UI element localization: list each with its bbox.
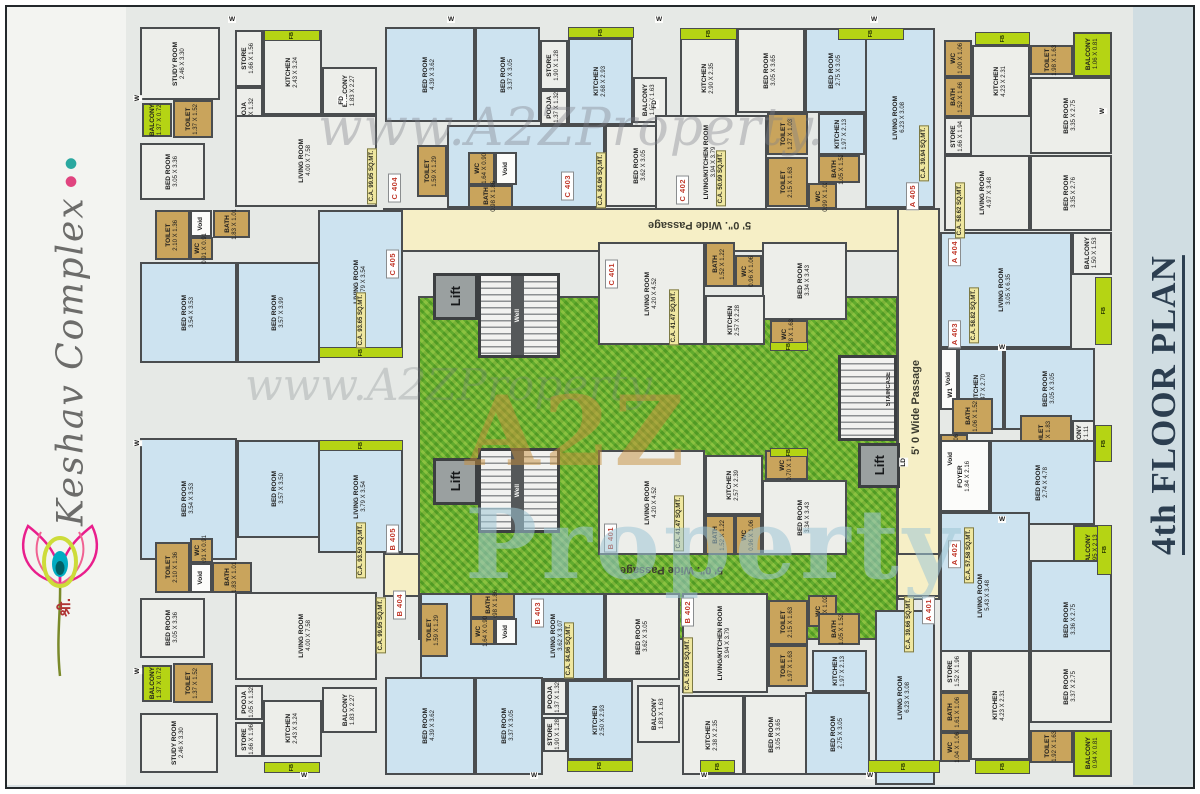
fb-strip: FB xyxy=(319,347,403,358)
marker-w: W xyxy=(870,16,878,23)
lift-bottom: Lift xyxy=(433,458,478,505)
pooja: POOJA1.05 X 1.32 xyxy=(235,685,263,720)
marker-w: W xyxy=(655,16,663,23)
bed-room: BED ROOM3.37 X 3.05 xyxy=(475,27,540,122)
unit-tag-c-402: C 402 xyxy=(676,176,689,205)
stair-well-top: Well xyxy=(511,276,524,355)
bed-room: BED ROOM3.37 X 3.05 xyxy=(475,677,543,775)
marker-w: W xyxy=(133,668,142,674)
fb-strip: FB xyxy=(975,760,1030,774)
area-tag-b-405: C.A. 93.50 SQ.MT. xyxy=(356,522,366,578)
kitchen: KITCHEN2.90 X 2.35 xyxy=(680,28,737,128)
wc: WC1.04 X 1.06 xyxy=(940,732,970,762)
balcony: BALCONY1.83 X 1.63 xyxy=(637,685,680,743)
fb-strip: FB xyxy=(1095,425,1112,462)
area-tag-b-403: C.A. 84.96 SQ.MT. xyxy=(564,622,574,678)
area-tag-a-403: C.A. 58.82 SQ.MT. xyxy=(969,287,979,343)
wc: WC0.99 X 1.02 xyxy=(808,183,837,209)
area-tag-b-404: C.A. 99.95 SQ.MT. xyxy=(376,597,386,653)
balcony: BALCONY1.37 X 0.72 xyxy=(142,665,172,702)
area-tag-a-404: C.A. 58.62 SQ.MT. xyxy=(955,182,965,238)
toilet: TOILET1.98 X 1.63 xyxy=(1030,45,1073,75)
store: STORE1.52 X 1.96 xyxy=(940,650,970,692)
passage-top-label: 5' 0". Wide Passage xyxy=(648,219,751,231)
unit-tag-b-402: B 402 xyxy=(681,598,694,627)
area-tag-a-405: C.A. 39.94 SQ.MT. xyxy=(919,125,929,181)
toilet: TOILET2.10 X 1.36 xyxy=(155,210,190,260)
area-tag-c-402: C.A. 50.99 SQ.MT. xyxy=(716,150,726,206)
kitchen: KITCHEN4.23 X 2.31 xyxy=(972,45,1030,117)
area-tag-a-402: C.A. 57.58 SQ.MT. xyxy=(964,527,974,583)
bed-room: BED ROOM3.54 X 3.53 xyxy=(140,262,237,363)
wc: WC0.91 X 0.91 xyxy=(190,538,213,563)
area-tag-c-404: C.A. 99.95 SQ.MT. xyxy=(367,148,377,204)
living-kitchen-room: LIVING/KITCHEN ROOM3.94 X 3.79 xyxy=(682,593,768,693)
bed-room: BED ROOM3.05 X 3.65 xyxy=(737,28,805,113)
page-title: 4th FLOOR PLAN xyxy=(1138,205,1190,605)
marker-w: W xyxy=(133,95,142,101)
unit-tag-b-401: B 401 xyxy=(604,524,617,553)
lift-top: Lift xyxy=(433,273,478,320)
void: Void xyxy=(495,618,517,645)
bed-room: BED ROOM3.05 X 3.36 xyxy=(140,598,205,658)
pooja: POOJA1.37 X 1.32 xyxy=(543,680,567,715)
toilet: TOILET1.59 X 1.29 xyxy=(420,603,448,657)
marker-w: W xyxy=(447,16,455,23)
area-tag-c-403: C.A. 84.96 SQ.MT. xyxy=(596,152,606,208)
fb-strip: FB xyxy=(680,28,737,40)
unit-tag-a-403: A 403 xyxy=(948,320,961,348)
balcony: BALCONY1.06 X 0.81 xyxy=(1073,32,1112,77)
unit-tag-a-401: A 401 xyxy=(922,596,935,624)
bath: BATH0.98 X 1.86 xyxy=(470,593,515,618)
unit-tag-a-405: A 405 xyxy=(906,182,919,210)
bath: BATH1.83 X 1.01 xyxy=(212,562,252,593)
marker-fd: FD xyxy=(650,100,659,109)
marker-w: W xyxy=(300,772,308,779)
bed-room: BED ROOM4.39 X 3.62 xyxy=(385,677,475,775)
lift-right: Lift xyxy=(858,443,900,488)
wc: WC1.64 X 0.90 xyxy=(470,618,495,645)
kitchen: KITCHEN2.57 X 2.39 xyxy=(705,455,763,515)
bath: BATH1.52 X 1.22 xyxy=(705,242,735,287)
fb-strip: FB xyxy=(319,440,403,451)
wc: WC1.00 X 1.06 xyxy=(944,40,972,77)
area-tag-c-405: C.A. 93.65 SQ.MT. xyxy=(356,292,366,348)
unit-tag-c-404: C 404 xyxy=(388,174,401,203)
balcony: BALCONY1.37 X 0.72 xyxy=(142,103,172,137)
bed-room: BED ROOM3.05 X 3.36 xyxy=(140,143,205,200)
marker-w: W xyxy=(998,516,1006,523)
living-kitchen-room: LIVING/KITCHEN ROOM3.94 X 3.79 xyxy=(655,115,767,210)
void: Void xyxy=(190,563,212,593)
kitchen: KITCHEN2.50 X 2.93 xyxy=(567,680,633,760)
toilet: TOILET1.37 X 1.52 xyxy=(173,663,213,703)
marker-ld: LD xyxy=(899,458,908,467)
unit-tag-c-401: C 401 xyxy=(605,260,618,289)
kitchen: KITCHEN4.23 X 2.31 xyxy=(970,650,1030,760)
brand-name: Keshav Complex●● xyxy=(40,55,102,625)
living-room: LIVING ROOM4.20 X 4.52 xyxy=(598,242,705,345)
area-tag-a-401: C.A. 39.66 SQ.MT. xyxy=(904,596,914,652)
toilet: TOILET1.27 X 1.03 xyxy=(767,113,808,155)
marker-w: W xyxy=(700,772,708,779)
toilet: TOILET1.37 X 1.52 xyxy=(173,100,213,138)
wc: WC0.96 X 1.06 xyxy=(735,255,762,287)
bath: BATH1.52 X 1.66 xyxy=(944,77,972,117)
unit-tag-c-403: C 403 xyxy=(561,172,574,201)
fb-strip: FB xyxy=(264,30,320,41)
fb-strip: FB xyxy=(264,762,320,773)
living-room: LIVING ROOM4.00 X 7.58 xyxy=(235,115,377,207)
balcony: BALCONY1.83 X 2.27 xyxy=(322,687,377,733)
toilet: TOILET1.97 X 1.63 xyxy=(768,645,808,687)
fb-strip: FB xyxy=(568,27,634,38)
wc: WC0.91 X 0.91 xyxy=(190,237,213,260)
unit-tag-c-405: C 405 xyxy=(386,250,399,279)
store: STORE1.90 X 1.28 xyxy=(543,717,567,752)
store: STORE1.66 X 1.96 xyxy=(235,722,263,757)
fb-strip: FB xyxy=(770,342,808,351)
kitchen: KITCHEN1.97 X 2.13 xyxy=(812,650,867,692)
fb-strip: FB xyxy=(567,760,633,772)
bed-room: BED ROOM3.35 X 2.76 xyxy=(1030,155,1112,231)
bed-room: BED ROOM3.57 X 3.99 xyxy=(237,262,320,363)
marker-w: W xyxy=(228,16,236,23)
bath: BATH1.83 X 1.01 xyxy=(213,210,250,238)
kitchen: KITCHEN2.43 X 3.24 xyxy=(263,30,322,115)
bed-room: BED ROOM3.37 X 2.75 xyxy=(1030,650,1112,723)
area-tag-b-401: C.A. 41.47 SQ.MT. xyxy=(674,495,684,551)
toilet: TOILET2.15 X 1.63 xyxy=(767,157,808,207)
living-room: LIVING ROOM4.00 X 7.58 xyxy=(235,592,377,680)
bed-room: BED ROOM4.39 X 3.62 xyxy=(385,27,475,122)
toilet: TOILET2.15 X 1.63 xyxy=(768,600,808,645)
bed-room: BED ROOM3.35 X 2.75 xyxy=(1030,77,1112,154)
fb-strip: FB xyxy=(1097,525,1112,575)
store: STORE1.90 X 1.28 xyxy=(540,40,568,90)
area-tag-c-401: C.A. 41.47 SQ.MT. xyxy=(669,289,679,345)
marker-fd: FD xyxy=(337,96,346,105)
bath: BATH1.06 X 1.52 xyxy=(952,398,993,434)
fb-strip: FB xyxy=(975,32,1030,45)
kitchen: KITCHEN2.43 X 3.24 xyxy=(263,700,322,757)
bath: BATH1.52 X 1.22 xyxy=(705,515,735,555)
store: STORE1.66 X 1.56 xyxy=(235,30,263,87)
balcony: BALCONY1.50 X 1.53 xyxy=(1072,232,1112,275)
bed-room: BED ROOM2.75 X 3.05 xyxy=(805,28,867,113)
bed-room: BED ROOM3.62 X 3.05 xyxy=(605,593,680,680)
floor-plan: Lift Well Lift Well STAIRCASE Lift 5' 0"… xyxy=(0,0,1200,794)
unit-tag-b-405: B 405 xyxy=(386,525,399,554)
brand-shri: श्री. xyxy=(56,598,76,617)
bed-room: BED ROOM3.34 X 3.43 xyxy=(762,480,847,555)
marker-w: W xyxy=(530,772,538,779)
balcony: BALCONY1.83 X 2.27 xyxy=(322,67,377,115)
bath: BATH0.98 X 1.86 xyxy=(468,185,513,208)
toilet: TOILET1.59 X 1.29 xyxy=(417,145,447,197)
bed-room: BED ROOM3.34 X 3.43 xyxy=(762,242,847,320)
unit-tag-a-404: A 404 xyxy=(948,238,961,266)
store: STORE1.66 X 1.94 xyxy=(944,117,972,155)
bath: BATH1.61 X 1.06 xyxy=(940,692,970,732)
bath: BATH1.05 X 1.52 xyxy=(818,155,860,183)
marker-w: W xyxy=(998,344,1006,351)
kitchen: KITCHEN1.97 X 2.13 xyxy=(818,113,865,155)
bed-room: BED ROOM3.05 X 3.65 xyxy=(744,695,808,775)
kitchen: KITCHEN2.57 X 2.28 xyxy=(705,295,765,345)
study-room: STUDY ROOM2.46 X 3.30 xyxy=(140,27,220,100)
kitchen: KITCHEN2.68 X 2.93 xyxy=(568,38,633,125)
marker-void: Void xyxy=(946,452,955,466)
study-room: STUDY ROOM2.46 X 3.30 xyxy=(140,713,218,773)
pooja: POOJA1.37 X 1.32 xyxy=(540,90,568,125)
staircase-right-label: STAIRCASE xyxy=(886,372,892,406)
bath: BATH1.05 X 1.52 xyxy=(818,613,860,645)
marker-w: W xyxy=(133,440,142,446)
toilet: TOILET1.92 X 1.63 xyxy=(1030,730,1073,763)
area-tag-b-402: C.A. 50.99 SQ.MT. xyxy=(683,637,693,693)
marker-w: W xyxy=(1098,108,1107,114)
balcony: BALCONY0.94 X 0.81 xyxy=(1073,730,1112,777)
fb-strip: FB xyxy=(868,760,940,773)
fb-strip: FB xyxy=(1095,277,1112,345)
unit-tag-b-404: B 404 xyxy=(393,591,406,620)
bed-room: BED ROOM2.75 X 3.05 xyxy=(805,692,870,775)
passage-bottom-label: 5' 0". Wide Passage xyxy=(620,564,723,576)
fb-strip: FB xyxy=(770,448,808,457)
toilet: TOILET2.10 X 1.36 xyxy=(155,542,190,593)
wc: WC0.96 X 1.06 xyxy=(735,515,762,555)
marker-w1: W1 xyxy=(946,388,955,398)
stair-well-bottom: Well xyxy=(511,451,524,530)
fb-strip: FB xyxy=(838,28,904,40)
unit-tag-a-402: A 402 xyxy=(948,540,961,568)
marker-w: W xyxy=(866,772,874,779)
unit-tag-b-403: B 403 xyxy=(531,599,544,628)
passage-right-label: 5' 0 Wide Passage xyxy=(910,360,922,455)
bed-room: BED ROOM3.57 X 3.50 xyxy=(237,440,320,538)
